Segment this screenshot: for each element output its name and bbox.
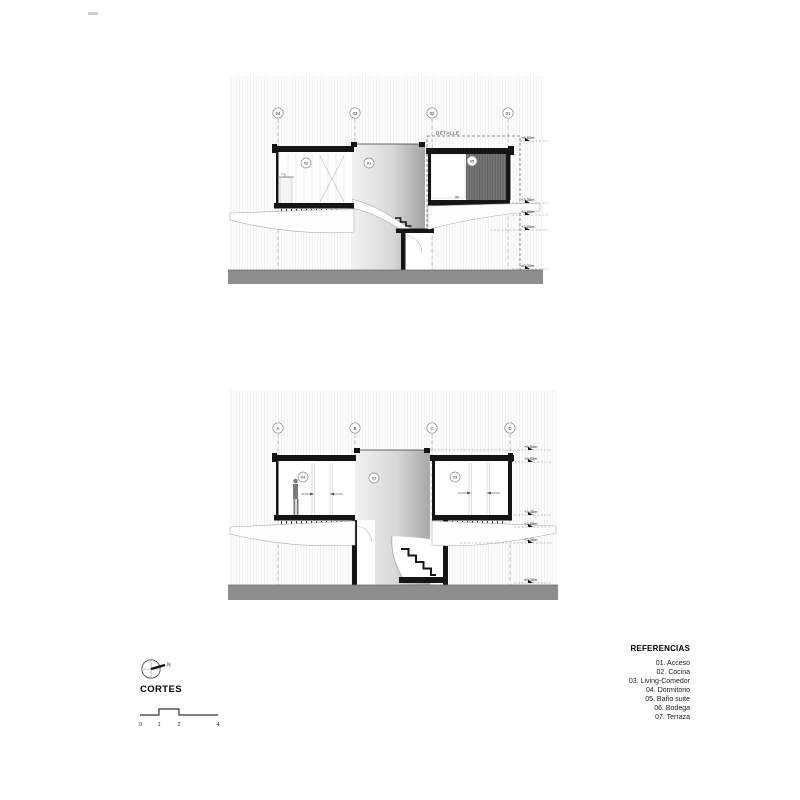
roof-slab: [426, 148, 514, 154]
grid-label: A: [277, 426, 280, 431]
elevation-label: +5.95m: [524, 456, 538, 461]
grid-label: 03: [353, 111, 358, 116]
sheet-title: CORTES: [140, 684, 182, 695]
references-title: REFERENCIAS: [540, 644, 690, 653]
references-block: REFERENCIAS 01. Acceso 02. Cocina 03. Li…: [540, 644, 690, 722]
sink-fixture: [279, 174, 294, 204]
left-jamb: [432, 461, 435, 515]
north-arrow-icon: N: [140, 656, 184, 684]
right-wall: [506, 154, 511, 200]
right-wall: [508, 461, 512, 515]
scale-number: 1: [157, 722, 160, 728]
reference-item: 07. Terraza: [540, 713, 690, 722]
elevation-label: ±0.00m: [521, 263, 535, 268]
roof-slab: [272, 455, 356, 461]
grid-label: B: [354, 426, 357, 431]
elevation-label: +3.35m: [521, 197, 535, 202]
section-drawing-top: 04 03 02 01 DETALLE: [225, 70, 555, 300]
grid-label: 02: [430, 111, 435, 116]
floor-slab: [432, 515, 512, 521]
left-wall: [276, 461, 279, 515]
floor-slab: [274, 515, 355, 521]
grid-label: 01: [506, 111, 511, 116]
reference-item: 05. Baño suite: [540, 695, 690, 704]
reference-item: 01. Acceso: [540, 659, 690, 668]
room-label: 03: [453, 475, 458, 480]
scale-number: 0: [139, 722, 142, 728]
page-edge-mark: [88, 12, 98, 15]
lower-room: [406, 233, 432, 272]
elevation-label: +6.50m: [524, 444, 538, 449]
elevation-label: +2.80m: [521, 209, 535, 214]
roof-slab: [430, 455, 514, 461]
grid-label: 04: [276, 111, 281, 116]
reference-item: 03. Living-Comedor: [540, 677, 690, 686]
scale-number: 2: [177, 722, 180, 728]
stair-tower: [351, 142, 434, 272]
roof-slab: [272, 146, 354, 152]
elevation-label: +2.00m: [521, 224, 535, 229]
reference-item: 02. Cocina: [540, 668, 690, 677]
room-label: 01: [367, 161, 372, 166]
floor-slab: [274, 203, 354, 209]
detail-label: DETALLE: [436, 131, 460, 136]
room-label: 05: [470, 159, 475, 164]
landing-slab: [399, 577, 446, 583]
elevation-label: +6.50m: [521, 135, 535, 140]
room-label: 02: [304, 161, 309, 166]
grid-label: C: [430, 426, 433, 431]
lower-wall: [401, 233, 406, 272]
room-label: 01: [372, 476, 377, 481]
left-jamb: [428, 154, 431, 200]
left-wall: [276, 152, 279, 205]
reference-item: 04. Dormitorio: [540, 686, 690, 695]
elevation-label: +3.35m: [524, 509, 538, 514]
ground-band: [228, 270, 543, 284]
room-label: 04: [301, 475, 306, 480]
window-type-label: VF: [455, 196, 461, 200]
section-drawing-bottom: A B C D 01: [225, 383, 565, 613]
elevation-label: +2.00m: [524, 537, 538, 542]
elevation-label: ±0.00m: [524, 577, 538, 582]
grid-label: D: [508, 426, 511, 431]
ground-band: [228, 585, 558, 600]
reference-item: 06. Bodega: [540, 704, 690, 713]
elevation-label: +2.80m: [524, 521, 538, 526]
north-label: N: [167, 663, 171, 669]
scale-number: 4: [216, 722, 219, 728]
graphic-scale-bar: 0 1 2 4: [138, 704, 224, 730]
